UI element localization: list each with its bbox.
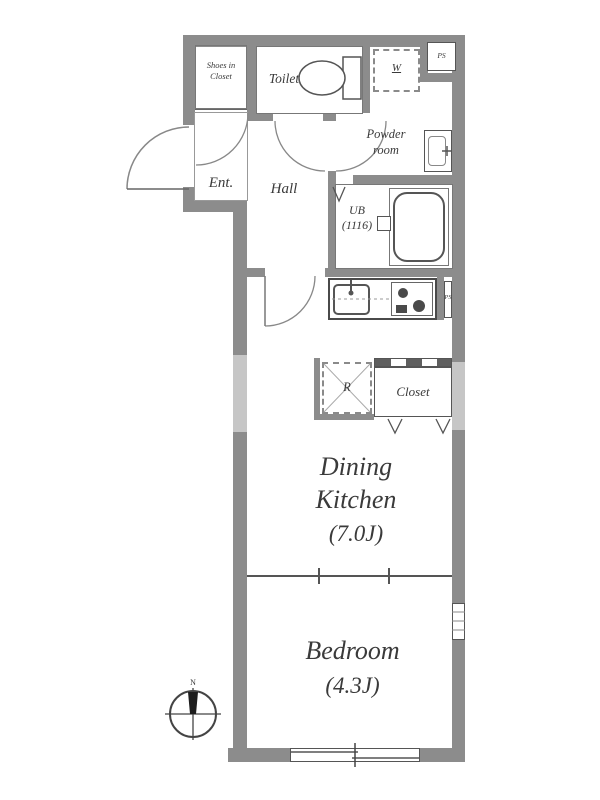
wall-under-ps <box>420 73 465 82</box>
wall-ub-kitchen <box>325 268 452 277</box>
label-entrance: Ent. <box>196 174 246 193</box>
label-bedroom: Bedroom (4.3J) <box>270 634 435 703</box>
dk-size: (7.0J) <box>329 521 383 546</box>
closet-sliding-door <box>374 358 452 367</box>
window-dk-right <box>452 362 465 430</box>
partition-tick-2 <box>388 568 390 584</box>
wall-powder-ub <box>353 175 452 184</box>
front-door-arc <box>127 127 189 189</box>
partition-dk-bedroom <box>247 575 452 577</box>
compass-north-label: N <box>186 678 200 688</box>
shoes-closet-line1: Shoes in <box>207 60 236 70</box>
closet-door-mark-2 <box>436 419 450 433</box>
kitchen-sink <box>333 284 370 315</box>
label-powder-room: Powder room <box>348 127 424 158</box>
wall-left-main <box>233 212 247 762</box>
wall-toilet-hall-left <box>247 113 273 121</box>
shoes-closet-line2: Closet <box>210 71 232 81</box>
toilet-door-arc <box>275 121 325 171</box>
bathtub <box>393 192 445 262</box>
label-washer: W <box>373 62 420 76</box>
wall-hall-dk <box>233 268 265 277</box>
floor-plan: Shoes in Closet Toilet W PS Powder room … <box>0 0 600 800</box>
wall-fridge-bottom <box>320 414 374 420</box>
ub-line2: (1116) <box>342 218 372 232</box>
dk-line2: Kitchen <box>316 485 397 514</box>
window-bedroom-right <box>452 603 465 640</box>
label-ps-kitchen: PS <box>441 294 455 302</box>
window-bedroom-bottom <box>290 748 420 762</box>
bedroom-name: Bedroom <box>305 636 399 665</box>
dk-door-arc <box>265 276 315 326</box>
wall-entrance-bottom <box>183 200 247 212</box>
closet-door-mark-1 <box>388 419 402 433</box>
bedroom-size: (4.3J) <box>325 673 379 698</box>
label-toilet: Toilet <box>258 71 310 88</box>
wall-toilet-hall-right <box>323 113 336 121</box>
compass-icon <box>165 688 221 740</box>
partition-tick-1 <box>318 568 320 584</box>
dk-line1: Dining <box>320 452 392 481</box>
label-fridge: R <box>322 380 372 396</box>
label-ps-top: PS <box>427 51 456 60</box>
ub-line1: UB <box>349 203 365 217</box>
label-unit-bath: UB (1116) <box>332 203 382 233</box>
label-shoes-closet: Shoes in Closet <box>195 60 247 81</box>
powder-line2: room <box>373 143 399 157</box>
kitchen-stove <box>391 282 433 316</box>
window-dk-left <box>233 355 247 432</box>
wall-fridge-left <box>314 358 320 420</box>
vanity-basin <box>428 136 446 166</box>
powder-line1: Powder <box>367 127 406 141</box>
label-dining-kitchen: Dining Kitchen (7.0J) <box>271 450 441 550</box>
label-hall: Hall <box>255 180 313 199</box>
label-closet: Closet <box>374 384 452 400</box>
wall-toilet-right <box>362 35 370 113</box>
